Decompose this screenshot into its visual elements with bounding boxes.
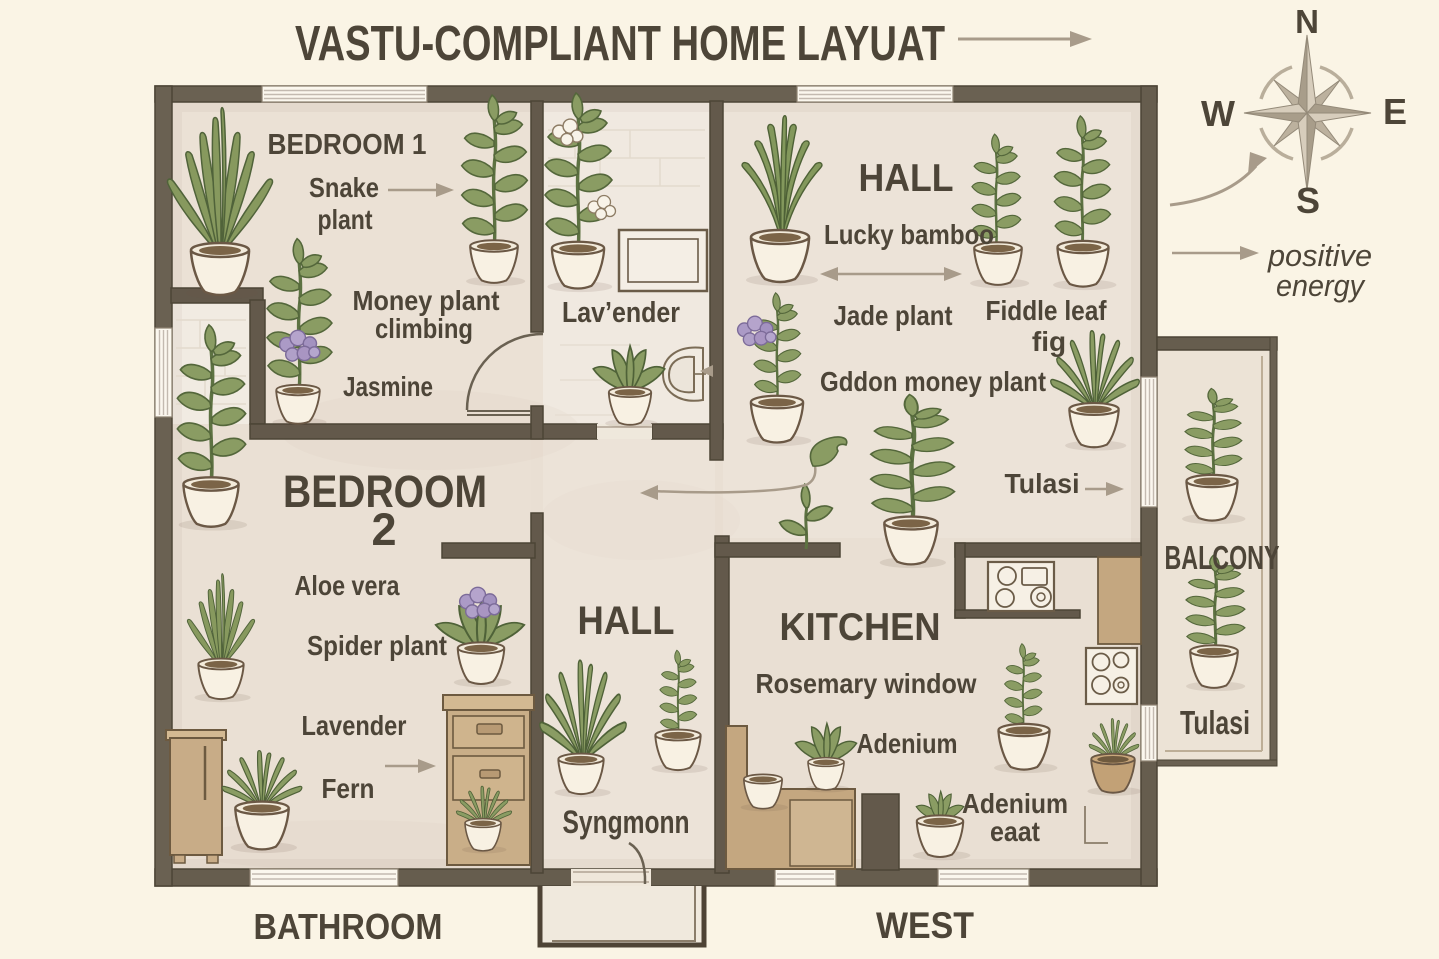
svg-text:BATHROOM: BATHROOM: [254, 906, 443, 947]
svg-text:Tulasi: Tulasi: [1180, 704, 1250, 741]
svg-text:N: N: [1295, 3, 1319, 40]
svg-text:Jade plant: Jade plant: [834, 300, 953, 331]
svg-text:Money plant: Money plant: [353, 285, 500, 316]
svg-text:Snake: Snake: [309, 172, 379, 203]
svg-text:Syngmonn: Syngmonn: [563, 804, 690, 840]
svg-text:WEST: WEST: [876, 905, 974, 946]
svg-text:Aloe vera: Aloe vera: [295, 570, 400, 601]
svg-text:BEDROOM 1: BEDROOM 1: [268, 129, 427, 161]
svg-text:energy: energy: [1276, 268, 1366, 303]
svg-text:2: 2: [371, 504, 396, 555]
svg-text:KITCHEN: KITCHEN: [780, 606, 941, 649]
svg-text:Gddon money plant: Gddon money plant: [820, 366, 1046, 397]
svg-text:HALL: HALL: [859, 157, 954, 200]
svg-text:Lav’ender: Lav’ender: [562, 297, 680, 329]
svg-text:VASTU-COMPLIANT HOME LAYUAT: VASTU-COMPLIANT HOME LAYUAT: [295, 17, 945, 71]
svg-text:fig: fig: [1032, 326, 1066, 357]
svg-text:Adenium: Adenium: [962, 788, 1068, 819]
svg-text:W: W: [1201, 93, 1235, 134]
svg-text:BALCONY: BALCONY: [1165, 539, 1280, 576]
svg-text:Adenium: Adenium: [857, 728, 958, 759]
svg-text:Fern: Fern: [322, 773, 375, 804]
svg-text:Jasmine: Jasmine: [343, 371, 433, 402]
svg-text:Tulasi: Tulasi: [1005, 468, 1080, 499]
svg-text:HALL: HALL: [578, 599, 675, 643]
svg-text:eaat: eaat: [990, 816, 1040, 847]
svg-text:Spider plant: Spider plant: [307, 630, 447, 661]
svg-text:Fiddle leaf: Fiddle leaf: [986, 295, 1108, 326]
svg-text:S: S: [1296, 180, 1320, 221]
svg-text:plant: plant: [318, 204, 373, 235]
svg-text:Rosemary window: Rosemary window: [756, 668, 977, 699]
svg-text:climbing: climbing: [375, 313, 473, 344]
svg-text:Lavender: Lavender: [302, 710, 407, 741]
svg-text:E: E: [1383, 91, 1407, 132]
svg-text:Lucky bamboo: Lucky bamboo: [824, 219, 994, 250]
